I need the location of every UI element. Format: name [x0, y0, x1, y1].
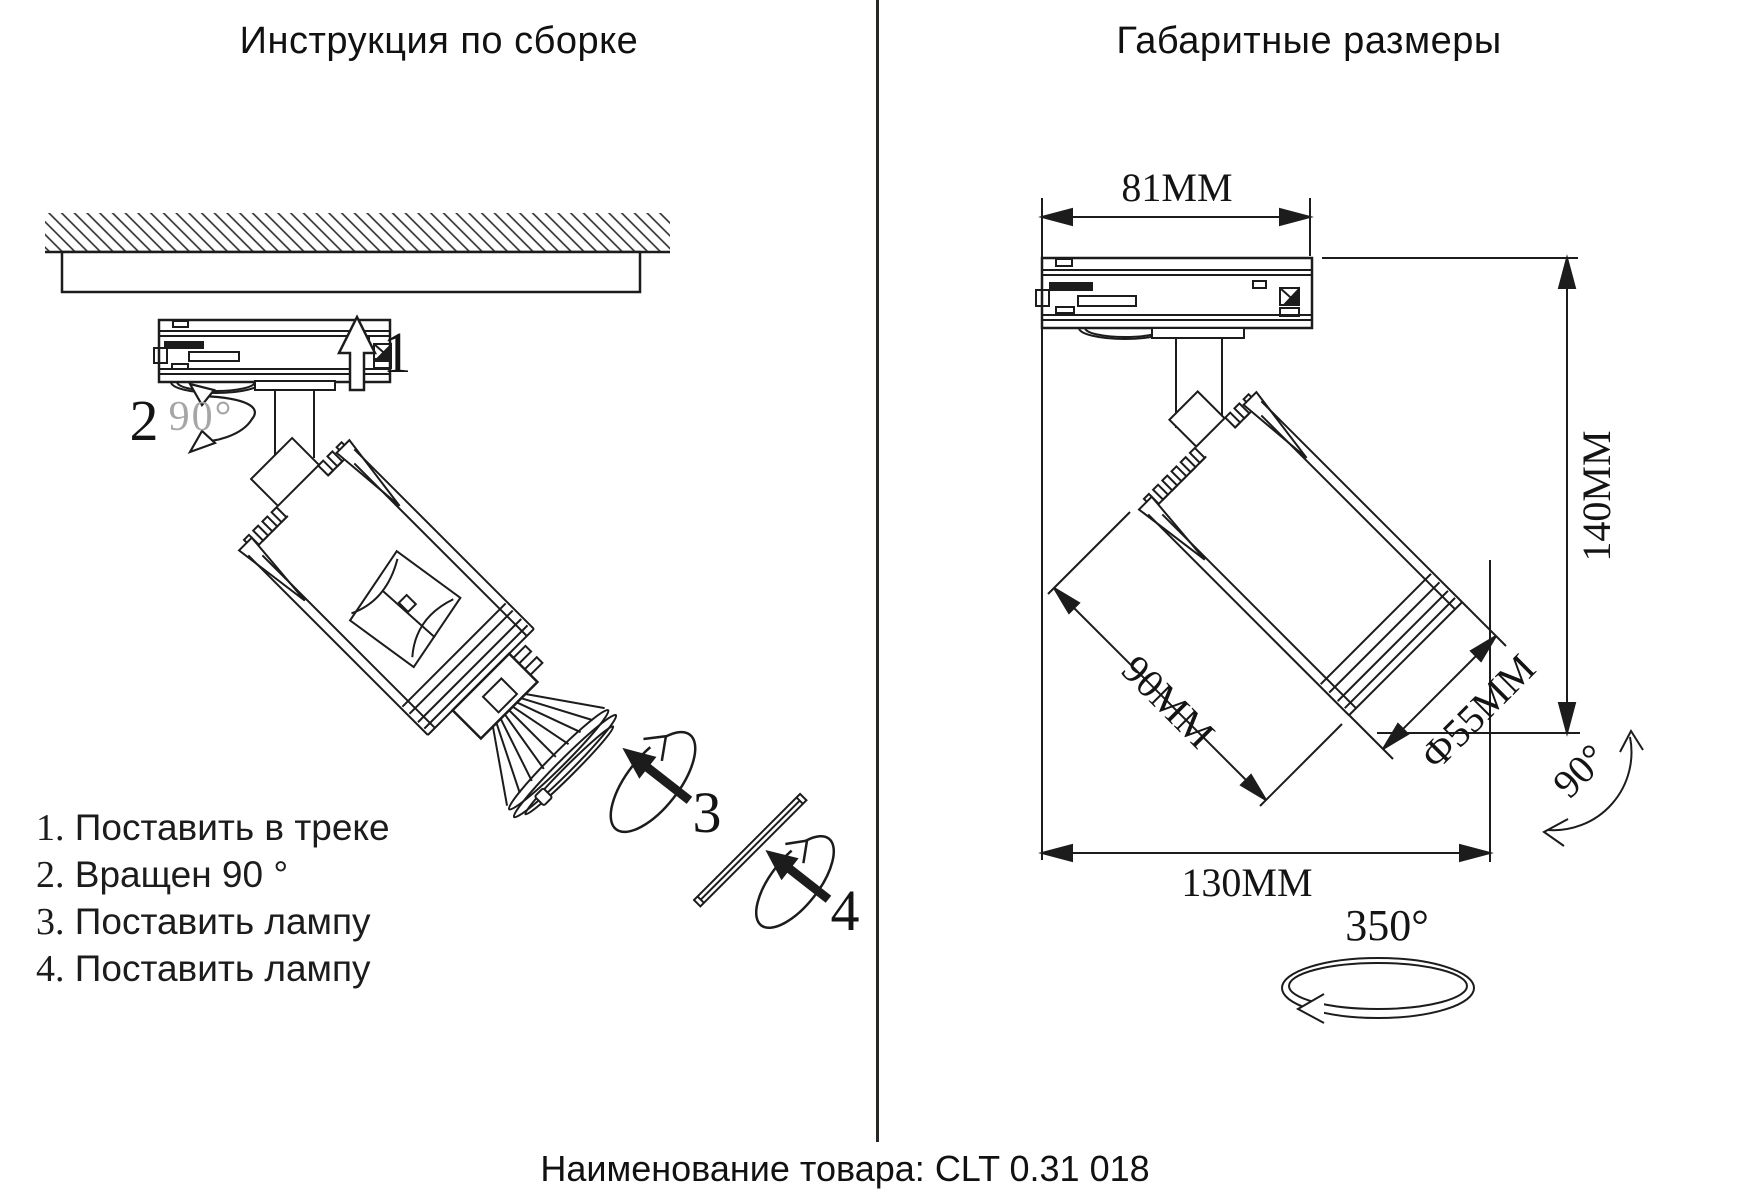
label-rotation-angle: 350°: [1345, 904, 1429, 948]
step-number: 2.: [36, 854, 65, 896]
step-text: Поставить лампу: [75, 948, 371, 989]
reflector-sketch: [339, 543, 472, 676]
rotate-90-hint: 90°: [169, 396, 234, 438]
step1-marker: 1: [383, 324, 412, 382]
assembly-steps-list: 1. Поставить в треке 2. Вращен 90 ° 3. П…: [36, 806, 390, 994]
track-adapter-dim: [1036, 258, 1312, 339]
list-item: 2. Вращен 90 °: [36, 853, 390, 900]
step-number: 4.: [36, 948, 65, 990]
step-text: Вращен 90 °: [75, 854, 288, 895]
label-total-width: 130MM: [1181, 863, 1312, 903]
spot-body: [209, 410, 629, 830]
label-total-height: 140MM: [1577, 430, 1617, 561]
step-number: 1.: [36, 807, 65, 849]
rotation-ellipse-icon: [1282, 958, 1474, 1023]
step4-marker: 4: [831, 882, 860, 940]
list-item: 3. Поставить лампу: [36, 900, 390, 947]
dim-total-width: [1042, 560, 1490, 862]
step-text: Поставить лампу: [75, 901, 371, 942]
list-item: 1. Поставить в треке: [36, 806, 390, 853]
step3-marker: 3: [693, 784, 722, 842]
step-text: Поставить в треке: [75, 807, 390, 848]
product-name-label: Наименование товара: CLT 0.31 018: [0, 1148, 1690, 1190]
mount-tab: [251, 438, 319, 506]
ceiling-hatch: [45, 213, 670, 252]
page: Инструкция по сборке Габаритные размеры: [0, 0, 1740, 1200]
label-adapter-width: 81MM: [1121, 168, 1232, 208]
dimensions-diagram: [1036, 198, 1643, 1023]
step-number: 3.: [36, 901, 65, 943]
technical-drawing: [0, 0, 1740, 1200]
track-rail: [62, 252, 640, 292]
step2-marker: 2: [130, 392, 159, 450]
list-item: 4. Поставить лампу: [36, 947, 390, 994]
dim-body-length: [1048, 512, 1342, 806]
